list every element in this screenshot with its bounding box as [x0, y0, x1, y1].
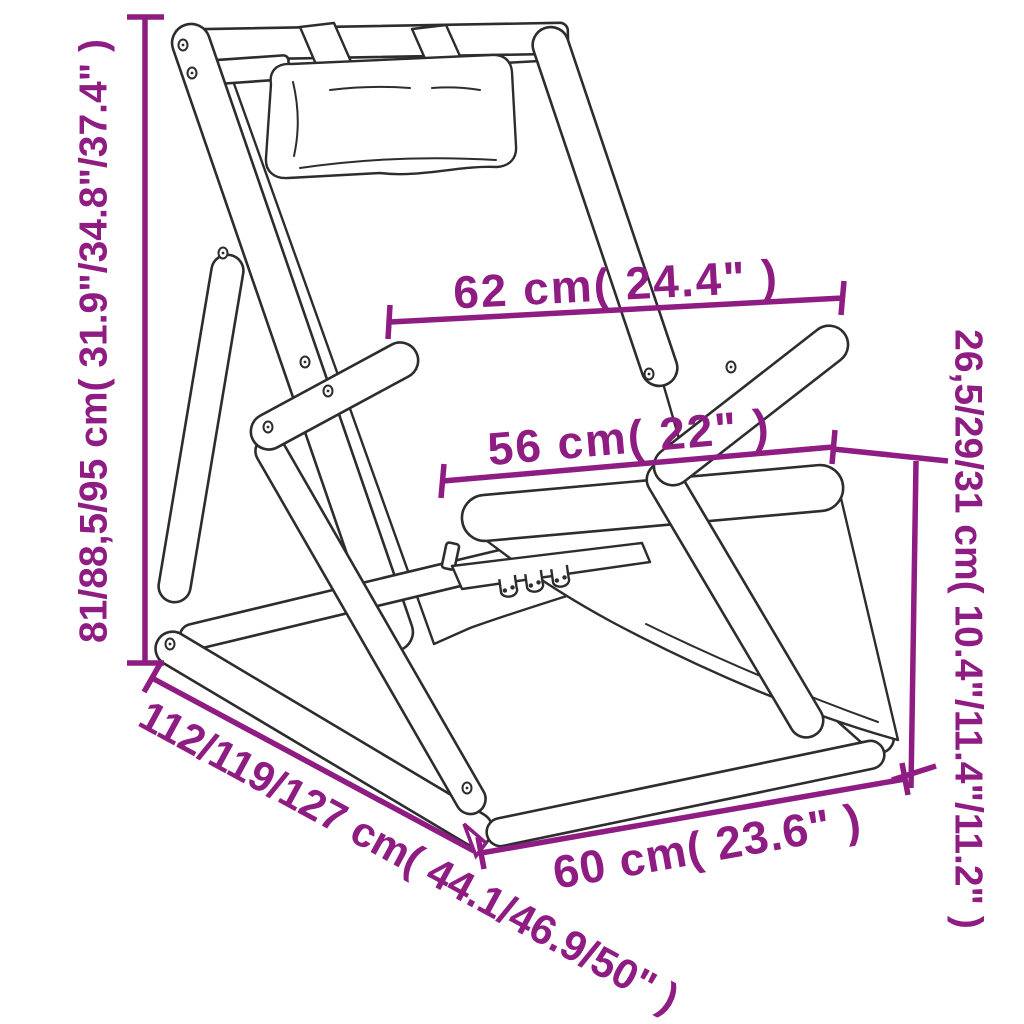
back-top-crossbar: [190, 23, 568, 61]
dim-label-seat-height: 26,5/29/31 cm( 10.4"/11.4"/11.2" ): [949, 329, 988, 929]
spacer-leg: [156, 252, 246, 604]
dim-line-overall-height: [127, 17, 164, 663]
dim-label-overall-height: 81/88,5/95 cm( 31.9"/34.8"/37.4" ): [75, 39, 114, 643]
product-dimension-diagram: 81/88,5/95 cm( 31.9"/34.8"/37.4" ) 62 cm…: [0, 0, 1024, 1024]
deck-chair-line-art: [0, 0, 1024, 1024]
